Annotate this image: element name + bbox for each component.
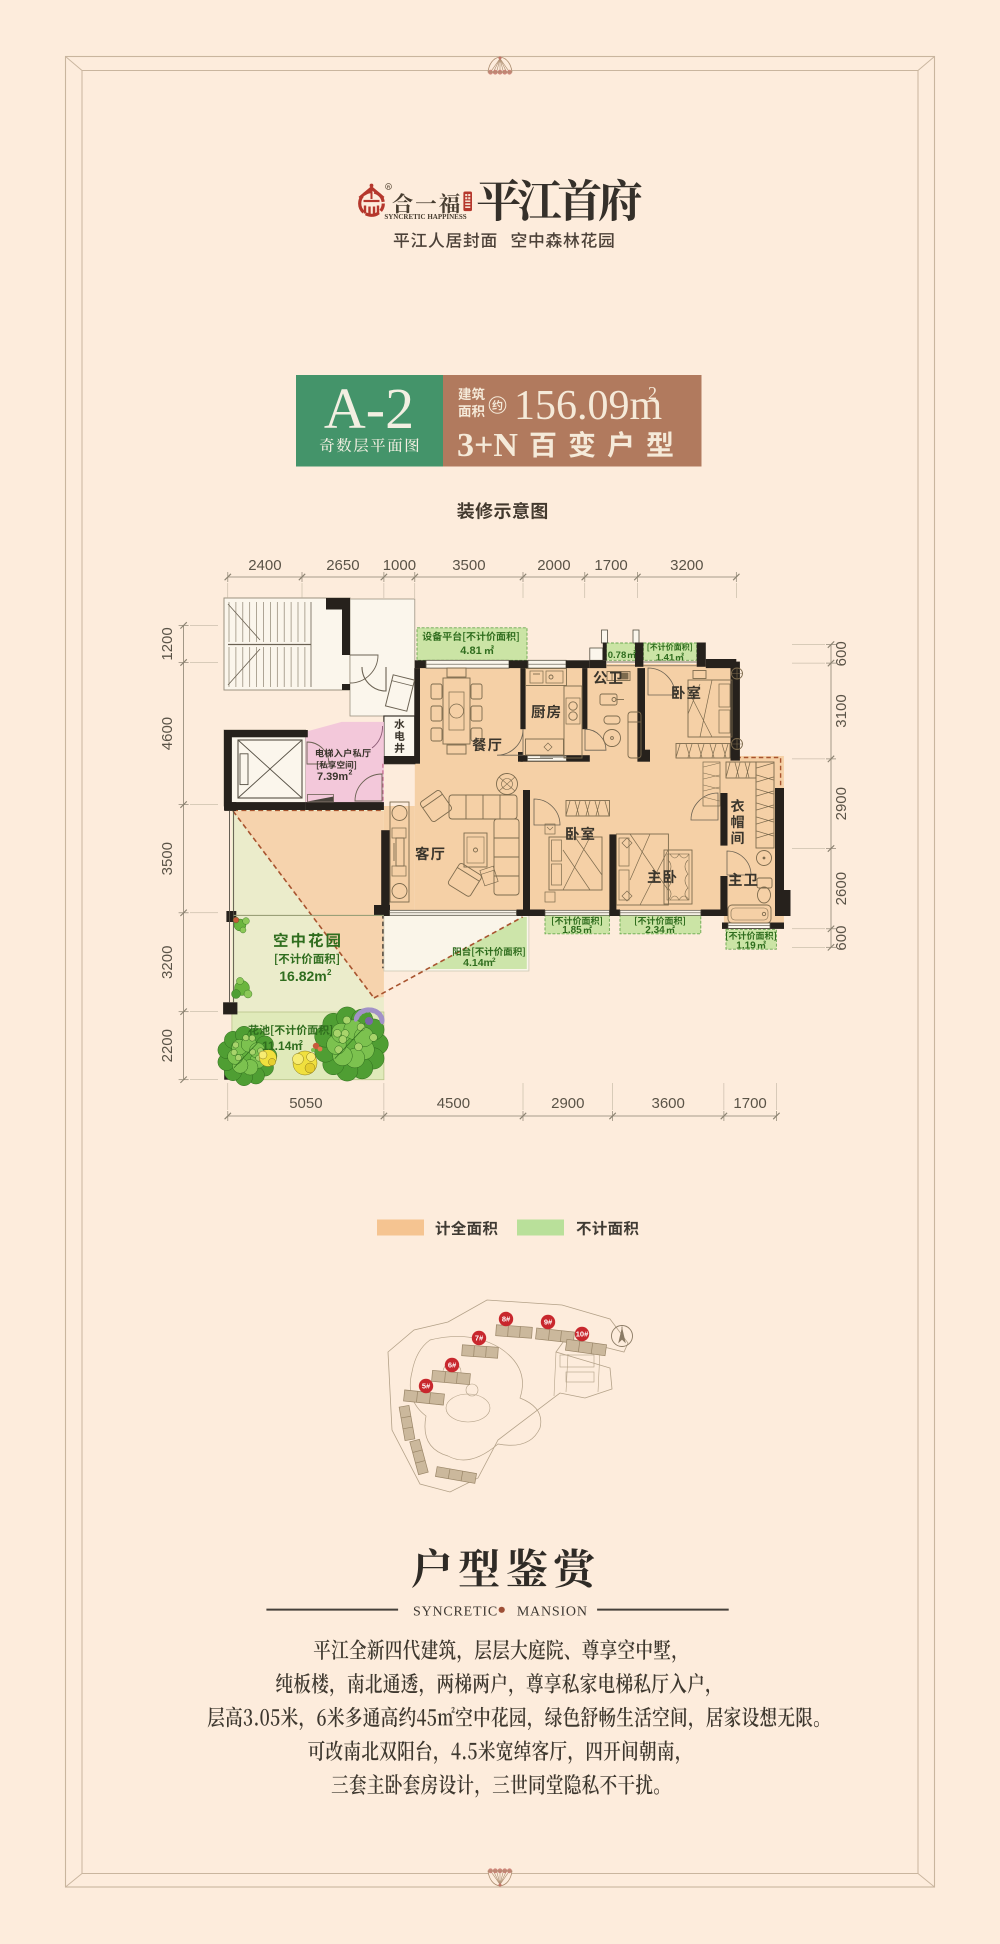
svg-text:1700: 1700	[594, 557, 627, 574]
svg-text:3200: 3200	[159, 946, 176, 979]
svg-text:4500: 4500	[437, 1095, 470, 1112]
svg-text:2400: 2400	[248, 557, 281, 574]
svg-text:2: 2	[648, 383, 657, 403]
svg-text:9#: 9#	[544, 1318, 553, 1327]
svg-text:3500: 3500	[159, 842, 176, 875]
svg-text:4600: 4600	[159, 717, 176, 750]
svg-text:4.14m: 4.14m	[463, 957, 493, 969]
svg-text:A-2: A-2	[324, 376, 414, 441]
svg-text:7#: 7#	[475, 1334, 484, 1343]
svg-text:2000: 2000	[537, 557, 570, 574]
svg-text:2: 2	[349, 770, 353, 777]
svg-text:R: R	[387, 185, 391, 191]
svg-text:5#: 5#	[422, 1382, 431, 1391]
svg-text:11.14m: 11.14m	[262, 1039, 302, 1053]
svg-text:0.78: 0.78	[608, 650, 627, 661]
svg-text:10#: 10#	[576, 1330, 589, 1339]
svg-text:1.85: 1.85	[562, 925, 582, 936]
svg-text:2900: 2900	[833, 787, 850, 820]
svg-text:156.09m: 156.09m	[514, 383, 663, 429]
svg-text:3500: 3500	[452, 557, 485, 574]
svg-text:1000: 1000	[383, 557, 416, 574]
svg-text:3600: 3600	[652, 1095, 685, 1112]
svg-text:3+N: 3+N	[457, 427, 518, 464]
svg-text:SYNCRETIC: SYNCRETIC	[413, 1605, 498, 1620]
svg-text:5050: 5050	[289, 1095, 322, 1112]
svg-text:16.82m: 16.82m	[279, 968, 326, 984]
svg-text:8#: 8#	[502, 1315, 511, 1324]
svg-text:2: 2	[492, 957, 496, 964]
svg-text:1.41: 1.41	[656, 653, 675, 664]
svg-text:2200: 2200	[159, 1029, 176, 1062]
svg-text:4.81: 4.81	[460, 645, 481, 657]
svg-text:1.19: 1.19	[736, 941, 756, 952]
svg-text:2650: 2650	[326, 557, 359, 574]
svg-text:2900: 2900	[551, 1095, 584, 1112]
svg-text:3100: 3100	[833, 694, 850, 727]
svg-text:7.39m: 7.39m	[317, 771, 348, 783]
svg-text:3200: 3200	[670, 557, 703, 574]
svg-text:1200: 1200	[159, 627, 176, 660]
svg-text:2: 2	[299, 1040, 303, 1047]
svg-text:2: 2	[327, 968, 332, 977]
svg-text:SYNCRETIC HAPPINESS: SYNCRETIC HAPPINESS	[384, 213, 466, 221]
svg-text:600: 600	[833, 926, 850, 951]
svg-text:600: 600	[833, 641, 850, 666]
svg-text:2.34: 2.34	[645, 925, 665, 936]
svg-text:1700: 1700	[733, 1095, 766, 1112]
svg-text:6#: 6#	[448, 1361, 457, 1370]
svg-text:MANSION: MANSION	[517, 1605, 588, 1620]
svg-text:2600: 2600	[833, 872, 850, 905]
